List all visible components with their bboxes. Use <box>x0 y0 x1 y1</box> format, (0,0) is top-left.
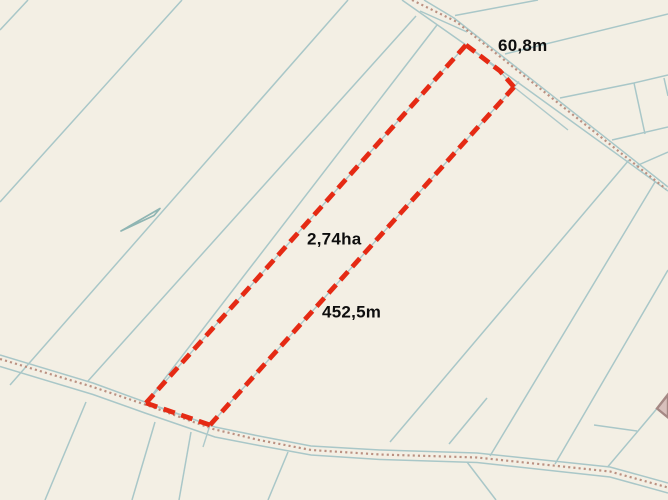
svg-text:452,5m: 452,5m <box>322 303 381 322</box>
svg-text:2,74ha: 2,74ha <box>307 230 362 249</box>
svg-text:60,8m: 60,8m <box>498 36 547 55</box>
